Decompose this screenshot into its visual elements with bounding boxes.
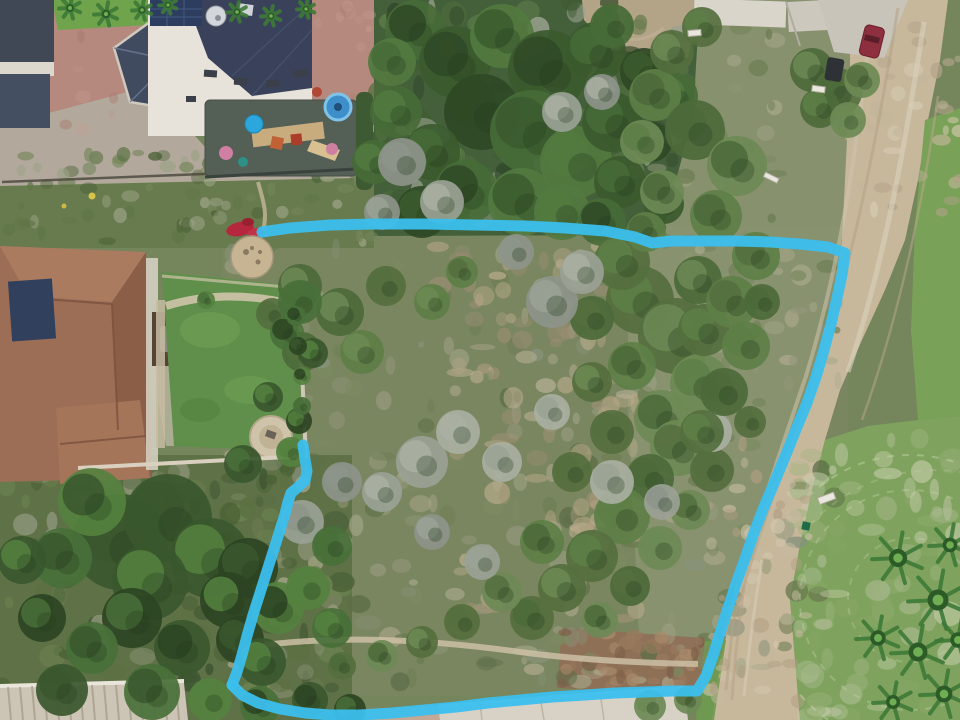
photo-detail [204,70,217,78]
photo-detail [917,515,946,526]
photo-detail [489,272,506,280]
photo-detail [686,505,702,521]
photo-detail [176,641,198,663]
photo-detail [345,8,356,20]
photo-detail [61,217,78,223]
photo-detail [444,337,454,355]
photo-detail [429,494,438,512]
villa-block [0,236,306,484]
photo-detail [801,664,824,689]
photo-detail [296,344,303,351]
photo-detail [858,524,885,536]
photo-detail [366,26,372,33]
photo-detail [76,123,91,135]
photo-detail [213,211,227,225]
photo-detail [730,159,754,183]
photo-detail [616,509,638,531]
photo-detail [891,86,906,101]
photo-detail [561,427,574,442]
photo-detail [741,340,760,359]
photo-detail [82,209,94,222]
photo-detail [568,467,584,483]
photo-detail [215,15,221,21]
photo-detail [877,658,896,670]
photo-detail [239,459,254,474]
photo-detail [462,535,477,544]
photo-detail [527,450,548,466]
photo-detail [525,474,548,483]
photo-detail [647,678,660,685]
photo-detail [808,581,829,594]
photo-detail [470,371,484,384]
photo-detail [847,674,868,693]
photo-detail [209,198,223,207]
photo-detail [243,249,249,255]
photo-detail [776,538,786,547]
photo-detail [257,656,276,675]
slate-roof-left [0,0,54,66]
photo-detail [387,56,406,75]
photo-detail [99,237,116,245]
photo-detail [758,298,772,312]
photo-detail [235,10,239,14]
photo-detail [262,508,279,521]
photo-detail [568,153,597,182]
photo-detail [47,512,58,531]
photo-detail [637,137,655,155]
photo-detail [634,15,647,30]
photo-detail [17,152,34,161]
photo-detail [726,296,747,317]
photo-detail [77,30,85,43]
photo-detail [835,443,848,466]
photo-detail [800,495,812,504]
photo-detail [657,187,675,205]
photo-detail [297,664,314,679]
photo-detail [132,150,144,156]
photo-detail [865,580,890,601]
photo-detail [445,588,465,601]
photo-detail [265,393,277,405]
photo-detail [73,66,84,72]
photo-detail [833,598,859,617]
photo-detail [577,267,595,285]
photo-detail [791,458,808,464]
photo-detail [816,103,832,119]
photo-detail [426,145,448,167]
photo-detail [38,226,46,240]
photo-detail [946,541,954,549]
photo-detail [497,328,511,344]
rock-garden [231,236,273,278]
photo-detail [527,613,545,631]
photo-detail [85,494,112,521]
photo-detail [489,367,500,379]
photo-detail [696,637,703,645]
photo-detail [83,162,97,175]
photo-detail [392,559,411,573]
photo-detail [256,260,261,265]
photo-detail [688,123,712,147]
photo-detail [300,374,307,381]
photo-detail [874,183,892,193]
photo-detail [600,667,617,676]
photo-detail [587,313,605,331]
photo-detail [910,491,922,513]
photo-detail [117,147,131,162]
photo-detail [710,210,731,231]
photo-detail [746,418,759,431]
photo-detail [835,372,842,389]
photo-detail [512,331,532,349]
photo-detail [450,385,461,396]
photo-detail [179,162,194,173]
photo-detail [940,690,949,699]
photo-detail [671,644,680,655]
photo-detail [814,619,832,630]
photo-detail [766,29,773,40]
photo-detail [205,695,223,713]
photo-detail [297,517,315,535]
photo-detail [478,558,492,572]
photo-detail [754,686,771,695]
photo-detail [5,597,14,609]
photo-detail [376,391,392,410]
slate-roof-left-2 [0,74,50,128]
photo-detail [549,634,571,644]
photo-detail [418,341,424,347]
bench [812,85,826,93]
photo-detail [588,377,604,393]
photo-detail [22,494,30,508]
photo-detail [251,207,264,219]
photo-detail [354,16,363,24]
photo-detail [337,184,354,193]
photo-detail [310,349,322,361]
photo-detail [757,125,775,141]
photo-detail [314,17,322,28]
photo-detail [764,321,784,334]
photo-detail [355,615,381,630]
photo-detail [109,92,118,103]
photo-detail [627,360,646,379]
photo-detail [930,479,939,501]
photo-detail [294,314,302,322]
photo-detail [280,473,289,490]
photo-detail [452,358,466,375]
photo-detail [943,125,949,135]
photo-detail [470,344,495,350]
photo-detail [349,514,363,536]
photo-detail [546,296,567,317]
photo-detail [858,76,872,90]
photo-detail [242,218,254,226]
photo-detail [557,377,574,394]
photo-detail [844,116,858,130]
photo-detail [666,153,678,167]
photo-detail [166,3,169,6]
photo-detail [768,101,775,111]
photo-detail [13,514,37,536]
scene-svg [0,0,960,720]
photo-detail [356,230,363,242]
photo-detail [649,89,670,110]
photo-detail [626,581,642,597]
photo-detail [256,497,264,508]
photo-detail [140,8,144,12]
photo-detail [512,501,520,523]
photo-detail [221,201,231,211]
photo-detail [691,647,699,661]
photo-detail [185,188,200,200]
photo-detail [328,541,344,557]
photo-detail [121,190,139,202]
red-play-box [290,133,302,145]
photo-detail [826,601,835,622]
photo-detail [698,324,719,345]
photo-detail [282,558,297,569]
photo-detail [391,672,410,691]
photo-detail [294,69,308,77]
photo-detail [386,356,396,375]
photo-detail [557,679,567,688]
photo-detail [33,163,42,173]
photo-detail [655,631,669,643]
photo-detail [828,538,846,553]
photo-detail [108,110,114,119]
photo-detail [889,698,896,705]
green-box [801,521,810,530]
photo-detail [870,201,878,217]
photo-detail [499,484,511,504]
photo-detail [616,670,625,685]
photo-detail [345,380,362,397]
photo-detail [914,531,927,544]
photo-detail [465,312,484,327]
photo-detail [458,618,472,632]
photo-detail [751,250,770,269]
photo-detail [558,629,571,636]
photo-detail [646,702,659,715]
photo-detail [272,602,293,623]
photo-detail [724,509,738,521]
orange-play-box [270,136,284,150]
photo-detail [17,165,26,177]
photo-detail [296,418,306,428]
photo-detail [410,495,432,512]
photo-detail [768,214,776,223]
photo-detail [942,58,954,66]
photo-detail [752,398,766,407]
photo-detail [334,103,342,111]
photo-detail [427,399,435,413]
photo-detail [205,664,213,676]
photo-detail [335,306,354,325]
photo-detail [732,528,740,537]
photo-detail [936,208,948,217]
villa-solar-panel [8,279,56,342]
photo-detail [114,208,127,223]
photo-detail [200,197,210,208]
photo-detail [573,413,580,425]
photo-detail [537,537,555,555]
photo-detail [357,347,375,365]
photo-detail [809,630,821,652]
photo-detail [678,674,687,686]
teal-toy [238,157,248,167]
photo-detail [739,437,747,452]
photo-detail [418,418,435,433]
photo-detail [18,202,25,210]
photo-detail [495,282,511,299]
photo-detail [697,427,715,445]
photo-detail [729,484,746,494]
photo-detail [12,217,29,230]
photo-detail [598,88,612,102]
photo-detail [267,182,275,195]
photo-detail [204,298,211,305]
photo-detail [887,433,895,448]
photo-detail [785,509,802,523]
photo-detail [683,559,705,572]
photo-detail [616,255,638,277]
photo-detail [829,465,837,474]
photo-detail [719,386,738,405]
photo-detail [86,642,107,663]
photo-detail [716,665,726,671]
photo-detail [780,614,795,625]
photo-detail [68,6,72,10]
photo-detail [667,47,685,65]
photo-detail [62,204,67,209]
photo-detail [180,312,240,348]
photo-detail [475,293,484,306]
photo-detail [893,553,902,562]
photo-detail [516,351,537,364]
photo-detail [911,429,929,449]
photo-detail [539,60,571,92]
photo-detail [55,551,79,575]
photo-detail [548,354,558,365]
photo-detail [626,673,639,686]
photo-detail [148,152,162,161]
photo-detail [291,207,304,215]
photo-detail [937,101,948,110]
photo-detail [521,657,527,665]
photo-detail [265,475,277,485]
photo-detail [498,457,514,473]
photo-detail [655,543,673,561]
photo-detail [874,634,882,642]
photo-detail [258,250,262,254]
photo-detail [266,80,279,88]
photo-detail [933,595,944,606]
photo-detail [458,268,471,281]
photo-detail [741,457,748,468]
photo-detail [59,120,71,130]
photo-detail [607,21,625,39]
photo-detail [948,117,959,124]
photo-detail [427,242,449,252]
photo-detail [288,448,300,460]
photo-detail [504,387,524,409]
blue-canopy [245,115,263,133]
photo-detail [234,78,247,86]
photo-detail [538,671,546,686]
photo-detail [782,479,796,489]
photo-detail [304,7,307,10]
photo-detail [776,500,785,509]
bench [688,29,701,36]
photo-detail [557,582,576,601]
photo-detail [317,440,330,446]
photo-detail [614,176,635,197]
photo-detail [930,63,942,79]
photo-detail [710,681,718,695]
photo-detail [784,375,794,391]
photo-detail [397,156,416,175]
photo-detail [332,239,340,259]
photo-detail [477,659,503,667]
photo-detail [498,587,514,603]
photo-detail [300,404,307,411]
photo-detail [749,60,768,76]
photo-detail [763,553,774,560]
photo-detail [372,453,396,461]
photo-detail [782,659,799,668]
photo-detail [303,583,321,601]
photo-detail [247,193,256,201]
photo-detail [548,408,562,422]
photo-detail [104,12,108,16]
photo-detail [831,704,848,719]
photo-detail [751,470,763,484]
photo-detail [378,487,394,503]
photo-detail [805,479,825,498]
red-toy [312,87,322,97]
photo-detail [304,194,319,203]
photo-detail [795,630,803,638]
photo-detail [790,307,807,314]
photo-detail [607,477,625,495]
photo-detail [269,14,273,18]
photo-detail [754,634,766,641]
photo-detail [589,45,613,69]
photo-detail [102,195,111,208]
photo-detail [596,616,610,630]
photo-detail [789,356,798,367]
photo-detail [932,135,951,146]
garden-walk [156,300,165,448]
photo-detail [401,587,417,597]
photo-detail [539,252,548,270]
aerial-drone-photo [0,0,960,720]
photo-detail [222,593,244,615]
photo-detail [719,595,726,601]
photo-detail [339,663,350,674]
photo-detail [792,590,800,600]
pink-spring-rider-2 [326,143,338,155]
photo-detail [706,537,717,549]
photo-detail [913,647,923,657]
photo-detail [233,196,243,211]
photo-detail [325,683,339,693]
photo-detail [84,148,94,162]
photo-detail [512,248,526,262]
photo-detail [449,6,464,26]
photo-detail [130,648,156,665]
photo-detail [180,398,220,422]
